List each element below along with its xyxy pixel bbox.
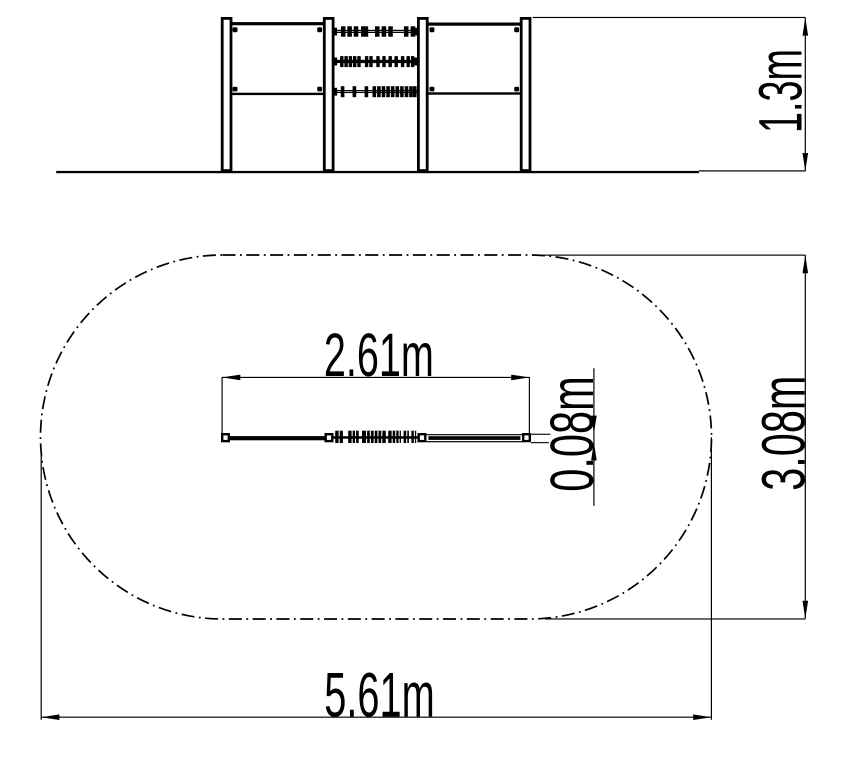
svg-text:1.3m: 1.3m [746, 49, 814, 133]
svg-text:2.61m: 2.61m [324, 321, 434, 389]
svg-text:0.08m: 0.08m [538, 376, 606, 492]
svg-text:5.61m: 5.61m [324, 660, 435, 730]
svg-text:3.08m: 3.08m [750, 376, 818, 491]
